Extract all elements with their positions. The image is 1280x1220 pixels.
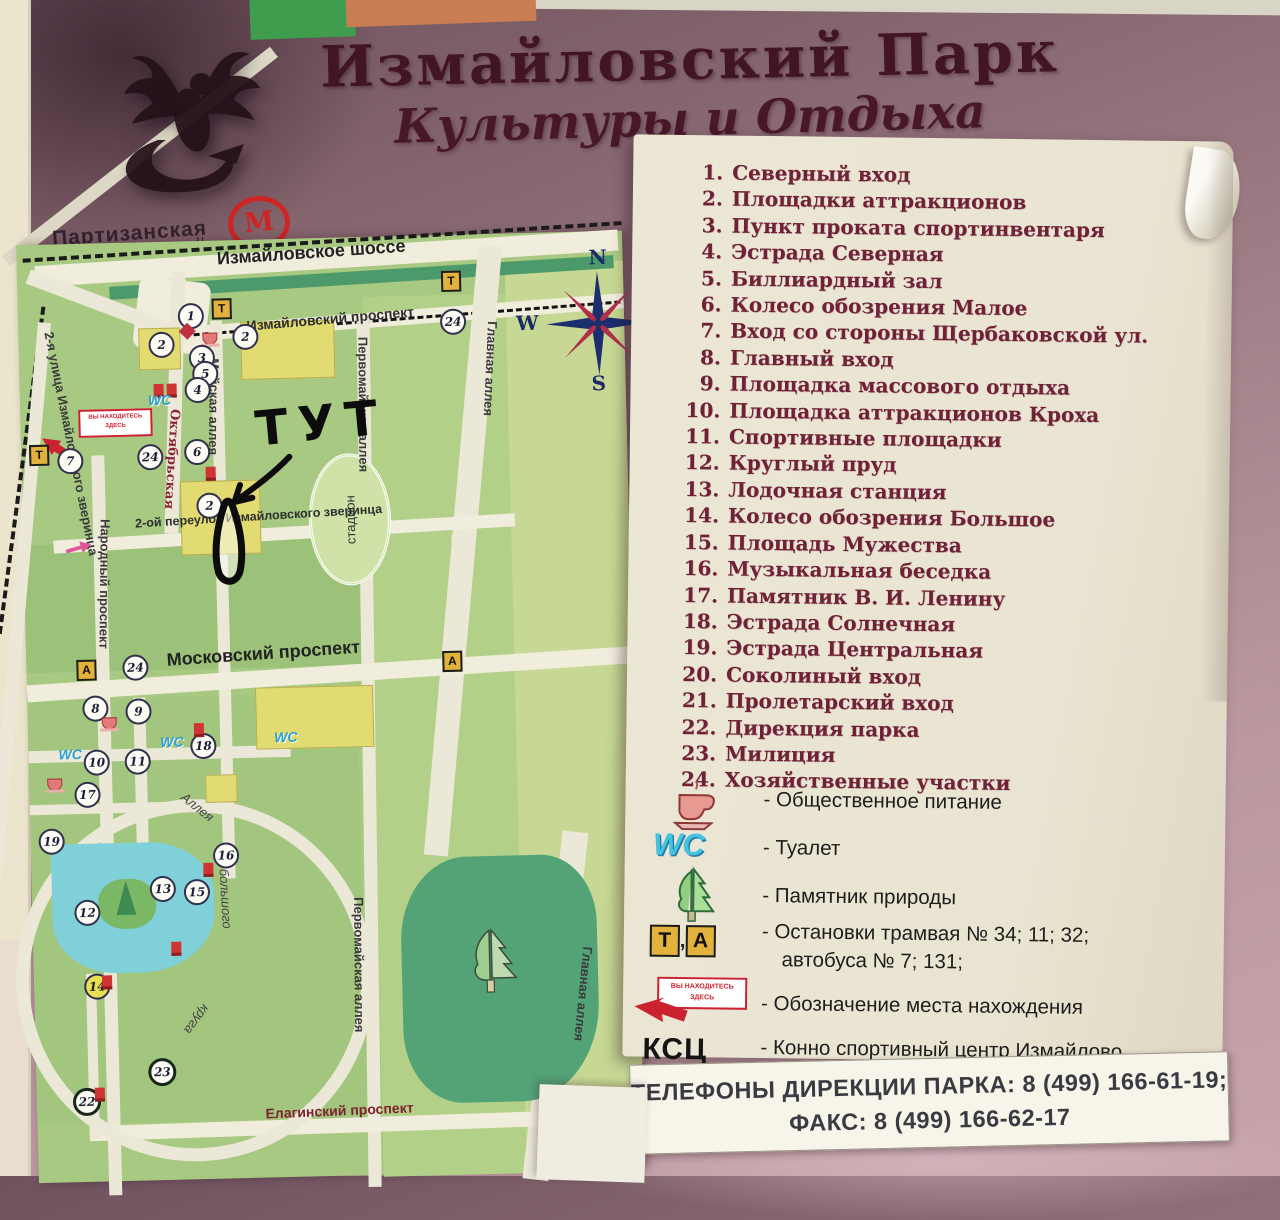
food-label: - Общественное питание (763, 788, 1002, 815)
tree-icon (670, 865, 717, 924)
map-number-marker: 9 (125, 698, 152, 725)
legend-item-number: 5. (682, 265, 722, 292)
transit-stop-marker: А (442, 651, 463, 672)
wc-marker: WC (274, 729, 298, 746)
legend-list: 1.Северный вход2.Площадки аттракционов3.… (676, 159, 1194, 799)
ksc-abbrev: КСЦ (642, 1033, 707, 1068)
transit-icons: Т,А (650, 925, 716, 958)
tram-stop-icon: Т (650, 925, 680, 957)
map-number-marker: 24 (137, 444, 164, 471)
legend-item-number: 7. (681, 317, 721, 344)
legend-item-label: Эстрада Северная (731, 239, 944, 268)
map-number-marker: 7 (57, 448, 84, 475)
legend-item-label: Соколиный вход (726, 661, 921, 690)
legend-item-number: 8. (681, 344, 721, 371)
food-icon (669, 779, 722, 832)
legend-item-label: Эстрада Центральная (726, 635, 983, 665)
map-number-marker: 13 (150, 876, 177, 903)
wc-marker: WC (148, 392, 172, 409)
legend-item-label: Площадки аттракционов (732, 186, 1027, 216)
legend-item-number: 21. (677, 687, 717, 714)
you-are-here-label: - Обозначение места нахождения (761, 992, 1083, 1020)
paper-sheet-edge (536, 1084, 647, 1183)
legend-item-number: 17. (678, 581, 718, 608)
board-frame-edge (500, 0, 1280, 15)
bus-stop-icon: А (685, 925, 715, 957)
legend-item-number: 6. (681, 291, 721, 318)
legend-item-label: Памятник В. И. Ленину (727, 582, 1006, 612)
legend-item-number: 3. (682, 212, 722, 239)
park-map: стадион N S W E Измайловское шоссеИзмайл… (16, 231, 645, 1184)
legend-item-label: Главный вход (730, 344, 894, 372)
legend-item-number: 14. (679, 502, 719, 529)
tut-text: ТУТ (253, 389, 385, 457)
tree-label: - Памятник природы (762, 884, 956, 910)
legend-item-number: 10. (680, 397, 720, 424)
legend-item-number: 16. (678, 555, 718, 582)
transit-stop-marker: Т (29, 445, 50, 466)
map-number-marker: 24 (440, 308, 467, 335)
map-number-marker: 16 (213, 842, 240, 869)
monument-marker (102, 975, 112, 989)
legend-item-number: 1. (683, 159, 723, 186)
legend-item-label: Эстрада Солнечная (727, 608, 956, 637)
map-number-marker: 2 (148, 332, 175, 359)
wc-icon: WC (653, 827, 705, 864)
monument-marker (95, 1087, 105, 1101)
marker-layer: 1ТТ2422354WCВЫ НАХОДИТЕСЬ ЗДЕСЬ7Т2462А24… (16, 231, 645, 1184)
map-number-marker: 2 (232, 324, 259, 351)
map-number-marker: 19 (38, 828, 65, 855)
transit-label-2: автобуса № 7; 131; (781, 948, 963, 974)
direction-arrow (64, 539, 92, 558)
legend-item-number: 20. (677, 661, 717, 688)
legend-item-label: Колесо обозрения Малое (730, 292, 1027, 322)
transit-stop-marker: Т (441, 271, 462, 292)
legend-item-number: 2. (683, 185, 723, 212)
monument-marker (171, 942, 181, 956)
monument-marker (194, 723, 204, 737)
map-number-marker: 23 (148, 1058, 177, 1087)
map-number-marker: 17 (74, 782, 101, 809)
background-orange-shape (346, 0, 537, 27)
legend-item-label: Милиция (725, 740, 836, 768)
map-number-marker: 15 (184, 879, 211, 906)
legend-item-number: 11. (680, 423, 720, 450)
monument-marker (203, 863, 213, 877)
phones-strip: ТЕЛЕФОНЫ ДИРЕКЦИИ ПАРКА: 8 (499) 166-61-… (629, 1051, 1230, 1155)
legend-item-number: 22. (676, 713, 716, 740)
legend-item-label: Биллиардный зал (731, 265, 943, 294)
legend-item-number: 18. (678, 608, 718, 635)
transit-label-1: - Остановки трамвая № 34; 11; 32; (762, 920, 1089, 948)
wc-label: - Туалет (763, 836, 841, 861)
legend-panel: 1.Северный вход2.Площадки аттракционов3.… (622, 134, 1233, 1063)
legend-item-number: 12. (679, 449, 719, 476)
food-marker (102, 717, 117, 729)
legend-item-number: 19. (677, 634, 717, 661)
wc-marker: WC (160, 733, 184, 750)
legend-item-label: Круглый пруд (728, 450, 896, 478)
transit-stop-marker: Т (211, 298, 232, 319)
legend-item-number: 23. (676, 740, 716, 767)
legend-item-number: 9. (680, 370, 720, 397)
legend-item-label: Северный вход (732, 160, 911, 189)
legend-item-label: Музыкальная беседка (727, 556, 991, 586)
wc-marker: WC (58, 746, 82, 763)
legend-item-label: Колесо обозрения Большое (728, 503, 1056, 533)
legend-item-label: Площадка массового отдыха (729, 371, 1070, 402)
map-number-marker: 12 (74, 900, 101, 927)
map-number-marker: 10 (83, 749, 110, 776)
legend-item-label: Лодочная станция (728, 476, 947, 505)
food-marker (47, 778, 62, 790)
legend-item-number: 15. (679, 529, 719, 556)
food-marker (202, 333, 217, 345)
legend-item-number: 4. (682, 238, 722, 265)
map-number-marker: 11 (124, 748, 151, 775)
you-are-here-box: ВЫ НАХОДИТЕСЬ ЗДЕСЬ (657, 977, 747, 1010)
map-number-marker: 24 (122, 654, 149, 681)
legend-item-label: Дирекция парка (725, 714, 919, 743)
legend-item-label: Пролетарский вход (726, 688, 954, 717)
legend-item-label: Площадь Мужества (728, 529, 962, 558)
transit-stop-marker: А (76, 660, 97, 681)
park-falcon-logo (88, 28, 298, 193)
legend-item-number: 13. (679, 476, 719, 503)
you-are-here-marker: ВЫ НАХОДИТЕСЬ ЗДЕСЬ (78, 408, 153, 438)
legend-item-label: Спортивные площадки (729, 424, 1002, 454)
tut-annotation: ТУТ (170, 385, 385, 605)
